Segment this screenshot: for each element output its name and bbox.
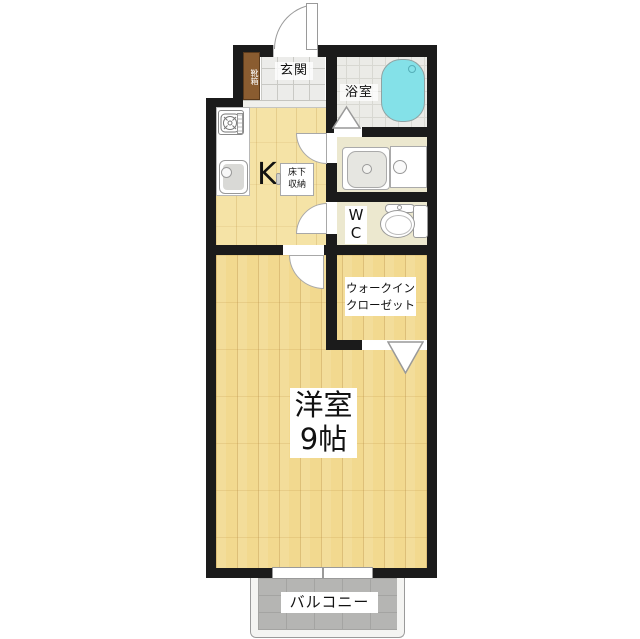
shoe-cabinet: 靴箱 bbox=[243, 52, 260, 100]
closet-folding-door-icon bbox=[387, 341, 424, 374]
washroom-door-opening bbox=[326, 133, 337, 163]
wall-entrance-left bbox=[233, 45, 243, 102]
faucet-icon bbox=[221, 167, 232, 178]
wc-label-line1: W bbox=[345, 206, 367, 224]
storage-handle-icon bbox=[276, 173, 281, 185]
wc-label: W C bbox=[345, 206, 367, 244]
toilet-button-icon bbox=[397, 205, 402, 210]
toilet-tank-icon bbox=[413, 205, 428, 238]
western-room-label-line1: 洋室 bbox=[290, 388, 357, 422]
washer-drain-icon bbox=[393, 160, 407, 174]
entrance-door-leaf-icon bbox=[306, 3, 318, 50]
floorplan-canvas: 靴箱 玄関 浴室 K 床下 収納 W C ウォークイン クローゼット 洋室 9帖… bbox=[0, 0, 640, 639]
stove-grill-icon bbox=[237, 113, 243, 134]
washbasin-drain-icon bbox=[362, 164, 372, 174]
walk-in-closet-label-line1: ウォークイン bbox=[345, 280, 416, 297]
wall-washroom-wc bbox=[326, 192, 437, 202]
western-room-label-line2: 9帖 bbox=[290, 422, 357, 456]
wall-bottom-left bbox=[206, 568, 272, 578]
bathroom-folding-door-icon bbox=[332, 106, 361, 129]
walk-in-closet-label-line2: クローゼット bbox=[345, 297, 416, 314]
western-room-label: 洋室 9帖 bbox=[290, 388, 357, 458]
balcony-label: バルコニー bbox=[281, 592, 378, 613]
entrance-step-strip bbox=[243, 100, 326, 108]
toilet-bowl-icon bbox=[380, 210, 415, 238]
bathroom-label: 浴室 bbox=[340, 84, 378, 101]
wall-left bbox=[206, 98, 216, 578]
washbasin-unit bbox=[342, 147, 390, 190]
balcony-window-divider-icon bbox=[322, 568, 324, 578]
balcony-window bbox=[272, 567, 373, 579]
underfloor-storage-label-line2: 収納 bbox=[281, 180, 313, 192]
shoe-cabinet-label: 靴箱 bbox=[244, 57, 259, 97]
bathtub-drain-icon bbox=[408, 65, 416, 73]
toilet-seat-icon bbox=[385, 215, 412, 235]
wall-room-closet bbox=[326, 245, 337, 350]
wc-label-line2: C bbox=[345, 224, 367, 242]
walk-in-closet-label: ウォークイン クローゼット bbox=[345, 277, 416, 316]
bathtub-icon bbox=[381, 59, 425, 122]
wc-door-opening bbox=[326, 202, 337, 234]
kitchen-sink bbox=[219, 160, 248, 194]
entrance-label: 玄関 bbox=[275, 62, 313, 80]
underfloor-storage-box: 床下 収納 bbox=[280, 163, 314, 196]
wall-closet-bottom bbox=[326, 340, 362, 350]
underfloor-storage-label-line1: 床下 bbox=[281, 168, 313, 180]
stove-unit bbox=[218, 110, 244, 135]
room-door-opening bbox=[283, 245, 324, 255]
wall-right bbox=[427, 45, 437, 578]
washer-pan bbox=[390, 146, 427, 188]
